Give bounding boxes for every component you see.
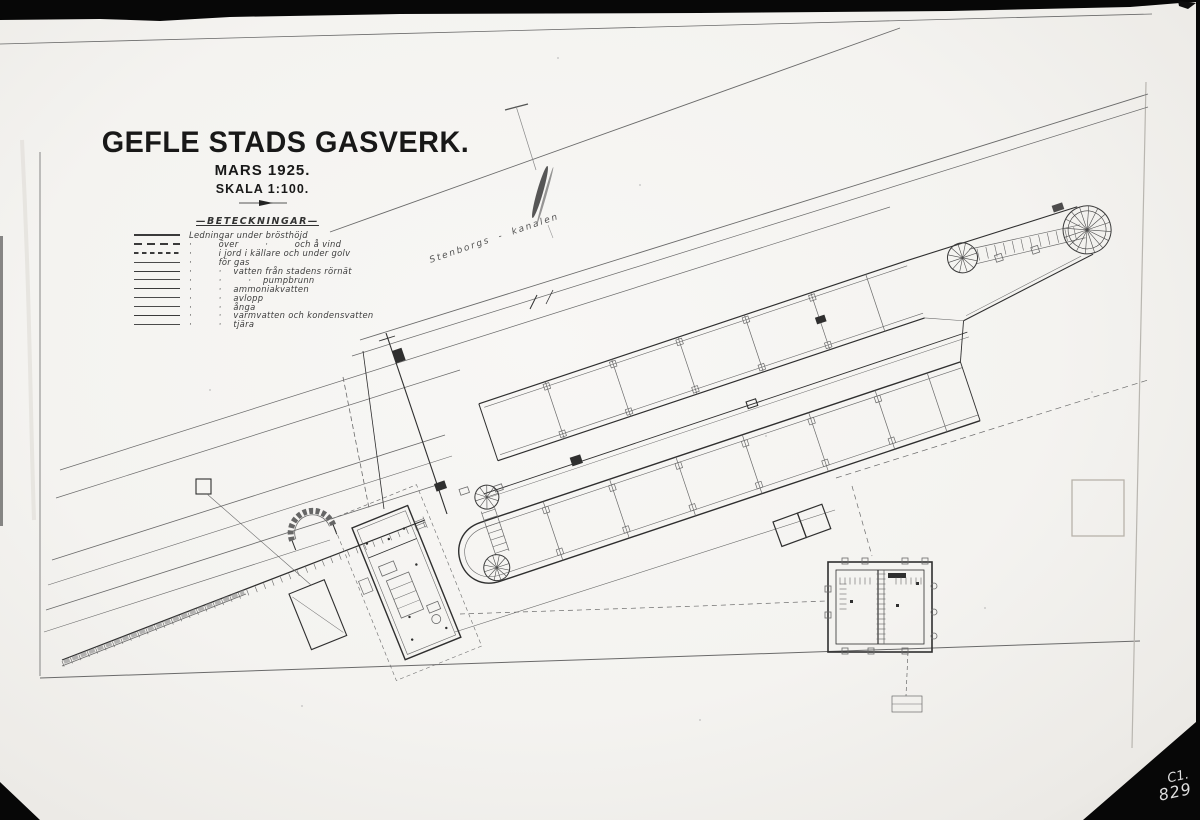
legend-line-sample: [134, 271, 180, 272]
drawing-scale: SKALA 1:100.: [95, 182, 430, 196]
spoke-wheel: [944, 239, 982, 277]
film-edge-mark: [0, 236, 3, 526]
utility-lines: [460, 486, 872, 614]
title-block: GEFLE STADS GASVERK. MARS 1925. SKALA 1:…: [95, 128, 430, 207]
legend-row-label: · · tjära: [189, 319, 254, 329]
meter-house: [825, 558, 937, 712]
fold-line: [1132, 82, 1146, 748]
street-lines: [44, 28, 1148, 632]
lower-wing-partitions: [540, 373, 947, 561]
equipment-mark: [815, 315, 827, 325]
scale-arrow-icon: [233, 199, 293, 207]
site-plan-drawing: [0, 0, 1200, 820]
legend-line-sample: [134, 297, 180, 298]
spoke-wheel: [1057, 199, 1118, 260]
legend-line-sample: [134, 315, 180, 316]
neatline: [0, 14, 1152, 748]
legend-rows: Ledningar under brösthöjd· över · och å …: [134, 231, 374, 329]
legend-row: · · tjära: [134, 320, 374, 329]
legend-header: —BETECKNINGAR—: [196, 216, 374, 227]
pilasters: [825, 558, 928, 654]
legend-line-sample: [134, 288, 180, 289]
stamp-square: [1072, 480, 1124, 536]
upper-wing-partitions: [542, 274, 884, 439]
legend-line-sample: [134, 279, 180, 280]
legend: —BETECKNINGAR— Ledningar under brösthöjd…: [134, 216, 374, 329]
coal-squares: [773, 504, 831, 546]
pump-house: [331, 485, 481, 681]
legend-line-sample: [134, 234, 180, 236]
retort-house-building: [413, 190, 1157, 591]
warehouse: [289, 580, 347, 650]
legend-row: · i jord i källare och under golv: [134, 249, 374, 258]
drawing-title: GEFLE STADS GASVERK.: [102, 128, 424, 158]
embankment: [62, 520, 425, 666]
arch-structure: [284, 504, 337, 550]
legend-line-sample: [134, 262, 180, 263]
legend-line-sample: [134, 324, 180, 325]
legend-line-sample: [134, 243, 180, 245]
spoke-wheel: [472, 482, 502, 512]
drawing-date: MARS 1925.: [95, 162, 430, 179]
legend-line-sample: [134, 252, 180, 254]
film-edge-mark: [1178, 1, 1196, 9]
photographed-drawing: GEFLE STADS GASVERK. MARS 1925. SKALA 1:…: [0, 0, 1200, 820]
legend-line-sample: [134, 306, 180, 307]
